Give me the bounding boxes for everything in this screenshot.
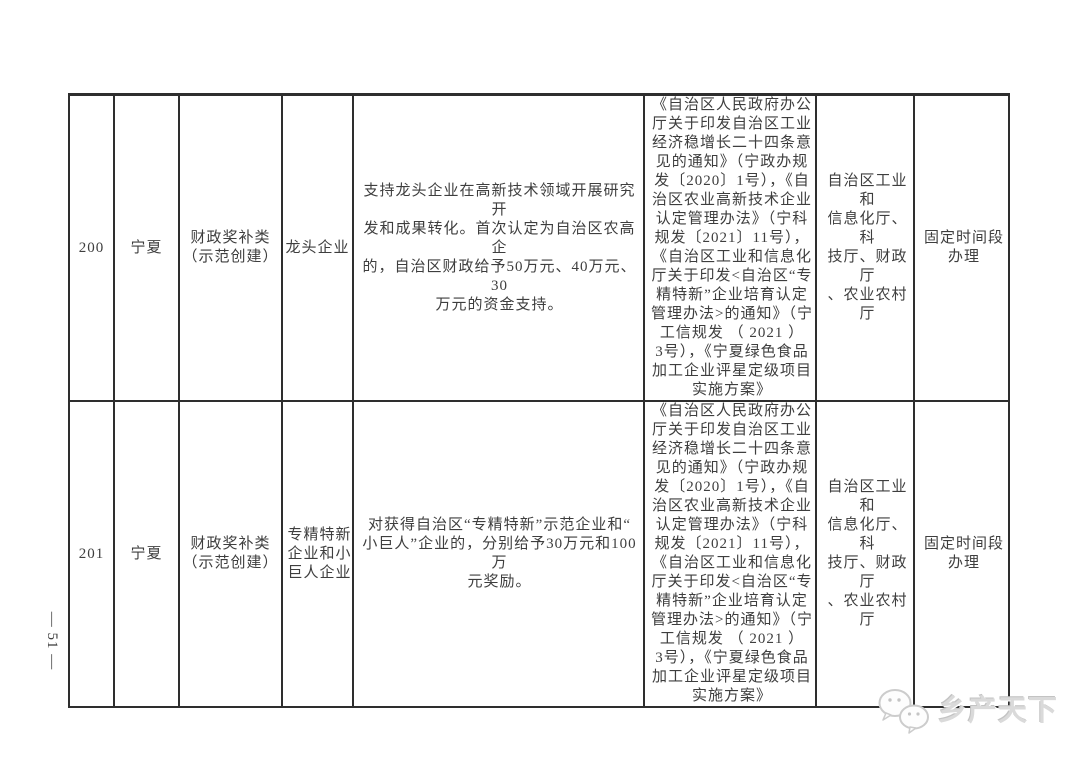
policy-table: 200 宁夏 财政奖补类 （示范创建） 龙头企业 支持龙头企业在高新技术领域开展… <box>68 93 1010 708</box>
support-target-cell: 专精特新 企业和小 巨人企业 <box>282 401 353 707</box>
region-cell: 宁夏 <box>114 95 179 402</box>
policy-basis-cell: 《自治区人民政府办公 厅关于印发自治区工业 经济稳增长二十四条意 见的通知》（宁… <box>644 401 816 707</box>
table-row: 200 宁夏 财政奖补类 （示范创建） 龙头企业 支持龙头企业在高新技术领域开展… <box>69 95 1009 402</box>
processing-time-cell: 固定时间段 办理 <box>914 401 1009 707</box>
policy-type-cell: 财政奖补类 （示范创建） <box>179 95 282 402</box>
chat-bubbles-icon <box>876 688 932 734</box>
page-number: — 51 — <box>40 606 60 676</box>
watermark-text: 乡产天下 <box>938 688 1058 734</box>
document-page: 200 宁夏 财政奖补类 （示范创建） 龙头企业 支持龙头企业在高新技术领域开展… <box>0 0 1080 763</box>
support-target-cell: 龙头企业 <box>282 95 353 402</box>
table-row: 201 宁夏 财政奖补类 （示范创建） 专精特新 企业和小 巨人企业 对获得自治… <box>69 401 1009 707</box>
policy-basis-cell: 《自治区人民政府办公 厅关于印发自治区工业 经济稳增长二十四条意 见的通知》（宁… <box>644 95 816 402</box>
support-content-cell: 支持龙头企业在高新技术领域开展研究开 发和成果转化。首次认定为自治区农高企 的，… <box>353 95 644 402</box>
processing-time-cell: 固定时间段 办理 <box>914 95 1009 402</box>
region-cell: 宁夏 <box>114 401 179 707</box>
department-cell: 自治区工业和 信息化厅、科 技厅、财政厅 、农业农村厅 <box>816 401 914 707</box>
policy-type-cell: 财政奖补类 （示范创建） <box>179 401 282 707</box>
row-number-cell: 201 <box>69 401 114 707</box>
support-content-cell: 对获得自治区“专精特新”示范企业和“ 小巨人”企业的，分别给予30万元和100万… <box>353 401 644 707</box>
row-number-cell: 200 <box>69 95 114 402</box>
department-cell: 自治区工业和 信息化厅、科 技厅、财政厅 、农业农村厅 <box>816 95 914 402</box>
watermark: 乡产天下 <box>876 688 1058 734</box>
